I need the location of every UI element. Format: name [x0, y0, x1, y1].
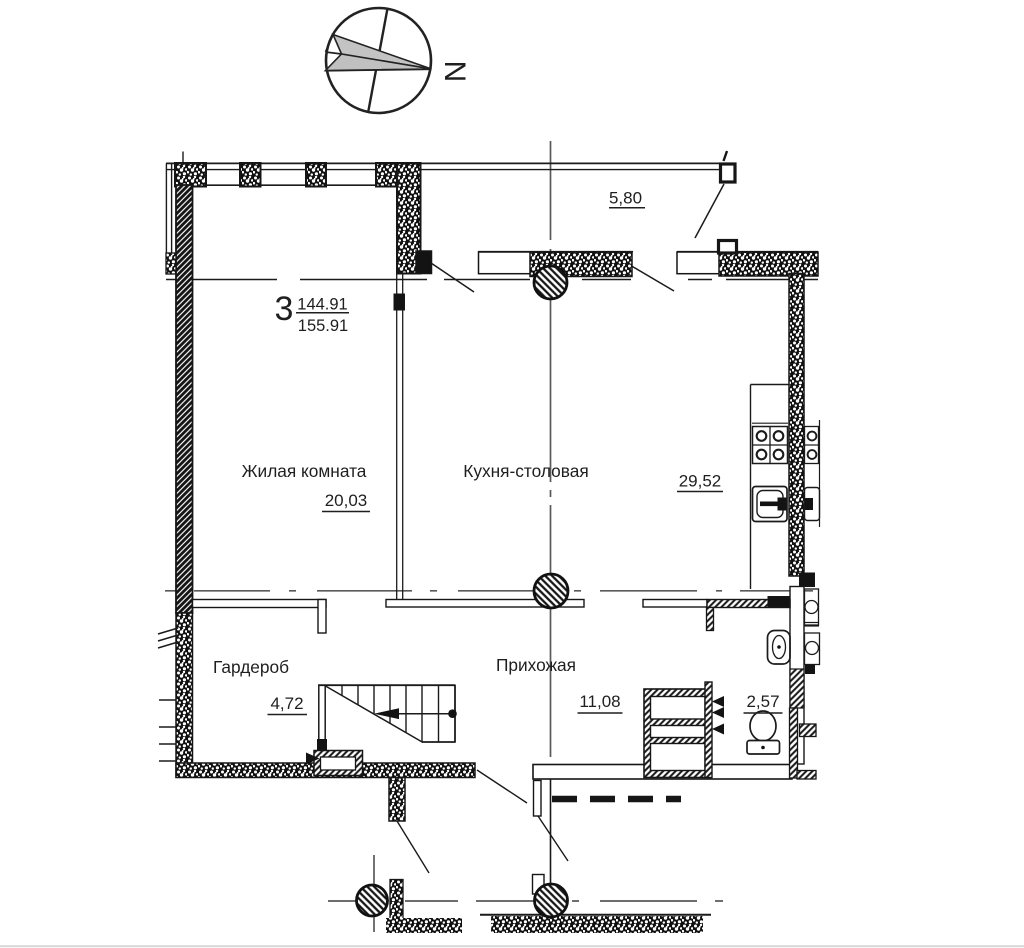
svg-text:11,08: 11,08: [579, 692, 620, 711]
svg-text:144.91: 144.91: [297, 296, 347, 314]
svg-text:155.91: 155.91: [298, 317, 348, 335]
svg-text:Гардероб: Гардероб: [213, 657, 289, 677]
svg-text:3: 3: [275, 290, 294, 328]
svg-text:2,57: 2,57: [746, 692, 779, 711]
svg-text:Прихожая: Прихожая: [496, 655, 576, 675]
svg-text:20,03: 20,03: [325, 491, 368, 510]
svg-text:Кухня-столовая: Кухня-столовая: [463, 461, 588, 481]
svg-text:5,80: 5,80: [609, 189, 642, 208]
svg-text:N: N: [438, 61, 471, 83]
svg-text:Жилая комната: Жилая комната: [242, 461, 367, 481]
svg-text:29,52: 29,52: [679, 472, 722, 491]
svg-text:4,72: 4,72: [270, 694, 303, 713]
